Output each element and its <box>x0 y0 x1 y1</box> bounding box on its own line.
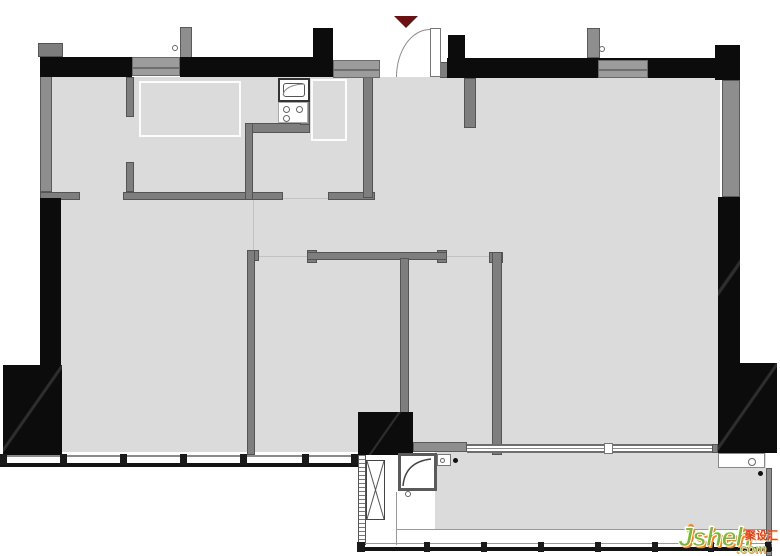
stove-burner <box>283 115 290 122</box>
rail-post <box>180 454 187 465</box>
wall-bedroom2-east <box>247 250 255 455</box>
window-north-entry <box>333 60 380 78</box>
stove-burner <box>283 106 290 113</box>
wall-kitchen-east <box>363 77 373 198</box>
wall-bedroom1-east-stub-a <box>126 77 134 117</box>
water-heater-unit <box>398 453 437 491</box>
stove-burner <box>296 106 303 113</box>
rail-post <box>538 542 544 552</box>
plan-dot <box>453 458 458 463</box>
rail-post <box>357 542 365 552</box>
wall-bedroom1-east-stub-b <box>126 162 134 192</box>
plan-dot <box>758 471 763 476</box>
wall-entry-closet-stub <box>464 78 476 128</box>
wall-bedroom3-west <box>492 252 502 455</box>
balcony-divider-line <box>396 492 397 545</box>
column-top-b <box>587 28 600 58</box>
wall-north-black-b <box>180 57 330 77</box>
column-entry-black <box>448 35 465 58</box>
opening-line-hall <box>253 200 254 252</box>
rail-post <box>302 454 309 465</box>
opening-line-bedroom3-door <box>447 256 490 257</box>
rail-post <box>481 542 487 552</box>
kitchen-sink <box>278 78 310 102</box>
entry-door-swing-arc <box>396 29 430 77</box>
balcony-sliding-track <box>467 444 712 453</box>
wall-hall-south <box>123 192 283 200</box>
watermark: Jsheh .com 聚设汇 <box>676 520 780 556</box>
rail-post <box>351 454 358 465</box>
floor-drain-circle <box>405 491 411 497</box>
column-north-black <box>313 28 333 77</box>
window-north-right <box>598 60 648 78</box>
track-divider <box>604 443 613 454</box>
wall-north-black-a <box>40 57 132 77</box>
rail-post <box>60 454 67 465</box>
floor-plan-canvas: Jsheh .com 聚设汇 <box>0 0 780 556</box>
wall-east-black <box>718 197 740 363</box>
column-top-a <box>180 27 192 58</box>
shaft-x-lines <box>367 461 384 519</box>
kitchen-stove <box>278 102 308 123</box>
utility-box-east <box>718 453 765 468</box>
plan-marker-circle <box>599 46 605 52</box>
plan-marker-circle <box>172 45 178 51</box>
wall-corner-ne <box>715 45 740 80</box>
water-heater-detail <box>401 456 434 488</box>
wall-east-upper <box>722 80 740 197</box>
entrance-direction-marker <box>394 16 418 28</box>
watermark-cn-label: 聚设汇 <box>745 527 778 543</box>
wall-bedroom2-north <box>307 252 447 260</box>
track-mid-line <box>467 448 712 449</box>
utility-small-box <box>437 454 451 466</box>
watermark-tld: .com <box>736 541 766 556</box>
rail-post <box>595 542 601 552</box>
rail-post <box>0 454 7 465</box>
wall-center-vertical <box>400 258 409 413</box>
wall-kitchen-west <box>245 123 253 200</box>
closet-outline <box>139 81 241 137</box>
kitchen-cabinet-outline <box>311 79 347 141</box>
utility-shaft-x <box>366 460 385 520</box>
rail-post <box>652 542 658 552</box>
balcony-sill-bar <box>413 442 467 452</box>
rail-post <box>424 542 430 552</box>
wall-west-bedroom1 <box>40 57 52 192</box>
opening-line-kitchen-door <box>283 198 328 199</box>
wall-block-south-center <box>358 412 413 455</box>
wall-block-sw <box>3 365 62 455</box>
balcony-west-hatch-rail <box>358 455 366 545</box>
utility-box-circle <box>748 458 756 466</box>
window-north-left <box>132 57 180 76</box>
opening-line-bedroom2-door <box>259 256 307 257</box>
wall-north-black-c <box>447 58 718 78</box>
wall-block-se <box>718 363 777 453</box>
rail-post <box>120 454 127 465</box>
small-box-circle <box>440 458 445 463</box>
wall-corner-nw <box>38 43 63 57</box>
entry-door-leaf <box>430 28 441 77</box>
floor-balcony <box>435 452 766 529</box>
sink-detail-line <box>282 82 306 98</box>
rail-post <box>240 454 247 465</box>
